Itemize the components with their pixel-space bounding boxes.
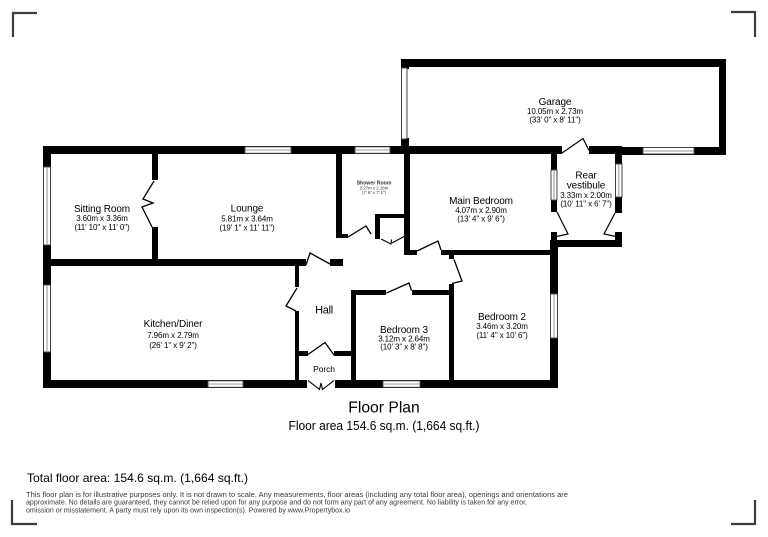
svg-text:7.96m x 2.79m: 7.96m x 2.79m bbox=[147, 331, 199, 340]
svg-text:(7' 6" x 7' 1"): (7' 6" x 7' 1") bbox=[362, 190, 387, 195]
svg-text:(19' 1" x 11' 11"): (19' 1" x 11' 11") bbox=[219, 223, 275, 232]
svg-text:Rear: Rear bbox=[575, 170, 597, 181]
svg-text:(10' 3" x 8' 8"): (10' 3" x 8' 8") bbox=[380, 343, 428, 352]
svg-text:5.81m x 3.64m: 5.81m x 3.64m bbox=[221, 215, 273, 224]
svg-text:Floor area 154.6 sq.m. (1,664: Floor area 154.6 sq.m. (1,664 sq.ft.) bbox=[289, 419, 480, 433]
svg-text:(13' 4" x 9' 6"): (13' 4" x 9' 6") bbox=[457, 215, 505, 224]
svg-text:Floor Plan: Floor Plan bbox=[348, 400, 420, 417]
svg-text:3.60m x 3.36m: 3.60m x 3.36m bbox=[76, 214, 128, 223]
svg-text:Porch: Porch bbox=[313, 364, 335, 374]
svg-text:Hall: Hall bbox=[315, 305, 333, 317]
svg-text:3.46m x 3.20m: 3.46m x 3.20m bbox=[476, 322, 528, 331]
svg-text:3.33m x 2.00m: 3.33m x 2.00m bbox=[560, 191, 612, 200]
svg-text:(11' 10" x 11' 0"): (11' 10" x 11' 0") bbox=[74, 223, 130, 232]
svg-text:Lounge: Lounge bbox=[231, 204, 264, 215]
svg-text:(10' 11" x 6' 7"): (10' 11" x 6' 7") bbox=[560, 200, 612, 209]
svg-text:Total floor area: 154.6 sq.m.: Total floor area: 154.6 sq.m. (1,664 sq.… bbox=[27, 471, 248, 485]
svg-text:(11' 4" x 10' 6"): (11' 4" x 10' 6") bbox=[476, 331, 528, 340]
svg-text:omission or misstatement. A pa: omission or misstatement. A party must r… bbox=[26, 506, 350, 515]
svg-text:(26' 1" x 9' 2"): (26' 1" x 9' 2") bbox=[149, 341, 197, 350]
svg-text:(33' 0" x 8' 11"): (33' 0" x 8' 11") bbox=[529, 115, 581, 124]
svg-text:Kitchen/Diner: Kitchen/Diner bbox=[144, 319, 203, 330]
